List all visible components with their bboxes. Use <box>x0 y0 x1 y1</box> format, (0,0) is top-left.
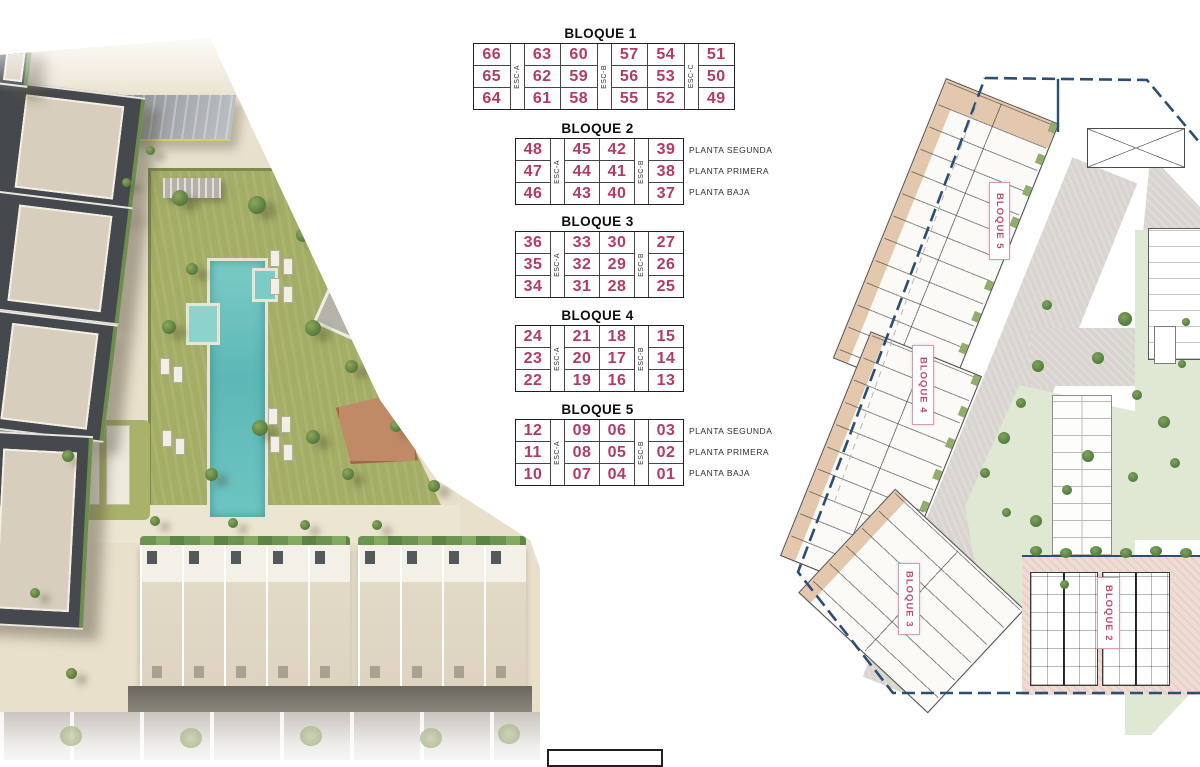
unit-column: 545352 <box>647 44 684 109</box>
stair-label: ESC-B <box>601 65 608 89</box>
unit-column: 666564 <box>474 44 510 109</box>
unit-38[interactable]: 38 <box>649 160 683 182</box>
block-table-title: BLOQUE 4 <box>515 309 680 324</box>
unit-43[interactable]: 43 <box>565 182 599 204</box>
unit-63[interactable]: 63 <box>525 44 561 65</box>
unit-column: 272625 <box>649 232 683 297</box>
block-table-title: BLOQUE 5 <box>515 403 680 418</box>
unit-55[interactable]: 55 <box>612 87 648 109</box>
unit-17[interactable]: 17 <box>600 347 634 369</box>
column-group: 393837 <box>649 139 683 204</box>
unit-36[interactable]: 36 <box>516 232 550 253</box>
block-table-2: BLOQUE 2484746ESC-A454443424140ESC-B3938… <box>515 122 684 205</box>
unit-column: 393837 <box>649 139 683 204</box>
unit-61[interactable]: 61 <box>525 87 561 109</box>
unit-39[interactable]: 39 <box>649 139 683 160</box>
stair-label: ESC-B <box>638 160 645 184</box>
unit-04[interactable]: 04 <box>600 463 634 485</box>
unit-10[interactable]: 10 <box>516 463 550 485</box>
unit-18[interactable]: 18 <box>600 326 634 347</box>
stair-label: ESC-A <box>554 347 561 371</box>
unit-41[interactable]: 41 <box>600 160 634 182</box>
column-group: 272625 <box>649 232 683 297</box>
column-group: 030201 <box>649 420 683 485</box>
unit-44[interactable]: 44 <box>565 160 599 182</box>
stair-label: ESC-A <box>514 65 521 89</box>
unit-05[interactable]: 05 <box>600 441 634 463</box>
column-group: 575655545352 <box>612 44 684 109</box>
floor-label: PLANTA BAJA <box>689 181 772 202</box>
unit-column: 212019 <box>565 326 599 391</box>
unit-grid: 242322ESC-A212019181716ESC-B151413 <box>515 325 684 392</box>
block-table-title: BLOQUE 2 <box>515 122 680 137</box>
unit-grid: 121110ESC-A090807060504ESC-B030201 <box>515 419 684 486</box>
unit-33[interactable]: 33 <box>565 232 599 253</box>
unit-56[interactable]: 56 <box>612 65 648 87</box>
unit-42[interactable]: 42 <box>600 139 634 160</box>
block-table-1: BLOQUE 1666564ESC-A636261605958ESC-B5756… <box>473 27 735 110</box>
block-table-3: BLOQUE 3363534ESC-A333231302928ESC-B2726… <box>515 215 684 298</box>
column-group: 212019181716 <box>565 326 634 391</box>
unit-grid: 363534ESC-A333231302928ESC-B272625 <box>515 231 684 298</box>
unit-06[interactable]: 06 <box>600 420 634 441</box>
unit-16[interactable]: 16 <box>600 369 634 391</box>
unit-19[interactable]: 19 <box>565 369 599 391</box>
unit-grid: 666564ESC-A636261605958ESC-B575655545352… <box>473 43 735 110</box>
unit-50[interactable]: 50 <box>699 65 735 87</box>
block-table-title: BLOQUE 1 <box>473 27 728 42</box>
unit-15[interactable]: 15 <box>649 326 683 347</box>
unit-24[interactable]: 24 <box>516 326 550 347</box>
unit-02[interactable]: 02 <box>649 441 683 463</box>
stair-column: ESC-B <box>597 44 612 109</box>
unit-46[interactable]: 46 <box>516 182 550 204</box>
stair-column: ESC-B <box>634 139 649 204</box>
floor-labels: PLANTA SEGUNDAPLANTA PRIMERAPLANTA BAJA <box>689 420 772 483</box>
unit-57[interactable]: 57 <box>612 44 648 65</box>
column-group: 454443424140 <box>565 139 634 204</box>
block-table-title: BLOQUE 3 <box>515 215 680 230</box>
unit-08[interactable]: 08 <box>565 441 599 463</box>
unit-29[interactable]: 29 <box>600 253 634 275</box>
unit-column: 181716 <box>599 326 634 391</box>
stair-column: ESC-C <box>684 44 699 109</box>
unit-23[interactable]: 23 <box>516 347 550 369</box>
stair-column: ESC-A <box>550 139 565 204</box>
unit-column: 030201 <box>649 420 683 485</box>
stair-column: ESC-B <box>634 326 649 391</box>
stair-label: ESC-A <box>554 160 561 184</box>
column-group: 666564 <box>474 44 510 109</box>
unit-column: 242322 <box>516 326 550 391</box>
unit-column: 636261 <box>525 44 561 109</box>
stair-column: ESC-A <box>550 326 565 391</box>
unit-column: 575655 <box>612 44 648 109</box>
unit-51[interactable]: 51 <box>699 44 735 65</box>
unit-13[interactable]: 13 <box>649 369 683 391</box>
unit-26[interactable]: 26 <box>649 253 683 275</box>
unit-53[interactable]: 53 <box>648 65 684 87</box>
unit-07[interactable]: 07 <box>565 463 599 485</box>
unit-column: 151413 <box>649 326 683 391</box>
unit-21[interactable]: 21 <box>565 326 599 347</box>
unit-28[interactable]: 28 <box>600 275 634 297</box>
block-table-5: BLOQUE 5121110ESC-A090807060504ESC-B0302… <box>515 403 684 486</box>
unit-11[interactable]: 11 <box>516 441 550 463</box>
unit-65[interactable]: 65 <box>474 65 510 87</box>
column-group: 151413 <box>649 326 683 391</box>
stair-label: ESC-B <box>638 253 645 277</box>
unit-27[interactable]: 27 <box>649 232 683 253</box>
column-group: 242322 <box>516 326 550 391</box>
unit-60[interactable]: 60 <box>561 44 597 65</box>
unit-64[interactable]: 64 <box>474 87 510 109</box>
stair-label: ESC-A <box>554 253 561 277</box>
unit-40[interactable]: 40 <box>600 182 634 204</box>
unit-column: 605958 <box>560 44 597 109</box>
column-group: 484746 <box>516 139 550 204</box>
unit-09[interactable]: 09 <box>565 420 599 441</box>
unit-30[interactable]: 30 <box>600 232 634 253</box>
unit-22[interactable]: 22 <box>516 369 550 391</box>
stair-label: ESC-C <box>688 64 695 88</box>
unit-column: 454443 <box>565 139 599 204</box>
unit-58[interactable]: 58 <box>561 87 597 109</box>
unit-34[interactable]: 34 <box>516 275 550 297</box>
stair-column: ESC-B <box>634 420 649 485</box>
unit-tables: BLOQUE 1666564ESC-A636261605958ESC-B5756… <box>0 0 1200 760</box>
availability-sheet: { "colors": { "unit_number_pink": "#b43a… <box>0 0 1200 760</box>
unit-62[interactable]: 62 <box>525 65 561 87</box>
unit-25[interactable]: 25 <box>649 275 683 297</box>
column-group: 515049 <box>699 44 735 109</box>
stair-label: ESC-B <box>638 441 645 465</box>
unit-column: 090807 <box>565 420 599 485</box>
unit-12[interactable]: 12 <box>516 420 550 441</box>
legend-box-partial <box>547 749 663 767</box>
column-group: 636261605958 <box>525 44 597 109</box>
unit-01[interactable]: 01 <box>649 463 683 485</box>
unit-32[interactable]: 32 <box>565 253 599 275</box>
floor-label: PLANTA SEGUNDA <box>689 420 772 441</box>
unit-48[interactable]: 48 <box>516 139 550 160</box>
unit-03[interactable]: 03 <box>649 420 683 441</box>
unit-column: 363534 <box>516 232 550 297</box>
unit-66[interactable]: 66 <box>474 44 510 65</box>
unit-column: 333231 <box>565 232 599 297</box>
unit-54[interactable]: 54 <box>648 44 684 65</box>
unit-37[interactable]: 37 <box>649 182 683 204</box>
unit-52[interactable]: 52 <box>648 87 684 109</box>
unit-47[interactable]: 47 <box>516 160 550 182</box>
unit-45[interactable]: 45 <box>565 139 599 160</box>
unit-31[interactable]: 31 <box>565 275 599 297</box>
unit-grid: 484746ESC-A454443424140ESC-B393837 <box>515 138 684 205</box>
stair-label: ESC-A <box>554 441 561 465</box>
stair-column: ESC-A <box>550 420 565 485</box>
unit-column: 424140 <box>599 139 634 204</box>
floor-label: PLANTA PRIMERA <box>689 441 772 462</box>
column-group: 363534 <box>516 232 550 297</box>
column-group: 090807060504 <box>565 420 634 485</box>
stair-column: ESC-B <box>634 232 649 297</box>
unit-20[interactable]: 20 <box>565 347 599 369</box>
unit-column: 515049 <box>699 44 735 109</box>
unit-49[interactable]: 49 <box>699 87 735 109</box>
stair-column: ESC-A <box>510 44 525 109</box>
unit-column: 302928 <box>599 232 634 297</box>
unit-column: 060504 <box>599 420 634 485</box>
stair-label: ESC-B <box>638 347 645 371</box>
unit-59[interactable]: 59 <box>561 65 597 87</box>
column-group: 121110 <box>516 420 550 485</box>
unit-35[interactable]: 35 <box>516 253 550 275</box>
floor-label: PLANTA SEGUNDA <box>689 139 772 160</box>
floor-label: PLANTA PRIMERA <box>689 160 772 181</box>
block-table-4: BLOQUE 4242322ESC-A212019181716ESC-B1514… <box>515 309 684 392</box>
column-group: 333231302928 <box>565 232 634 297</box>
floor-labels: PLANTA SEGUNDAPLANTA PRIMERAPLANTA BAJA <box>689 139 772 202</box>
unit-14[interactable]: 14 <box>649 347 683 369</box>
unit-column: 484746 <box>516 139 550 204</box>
floor-label: PLANTA BAJA <box>689 462 772 483</box>
stair-column: ESC-A <box>550 232 565 297</box>
unit-column: 121110 <box>516 420 550 485</box>
